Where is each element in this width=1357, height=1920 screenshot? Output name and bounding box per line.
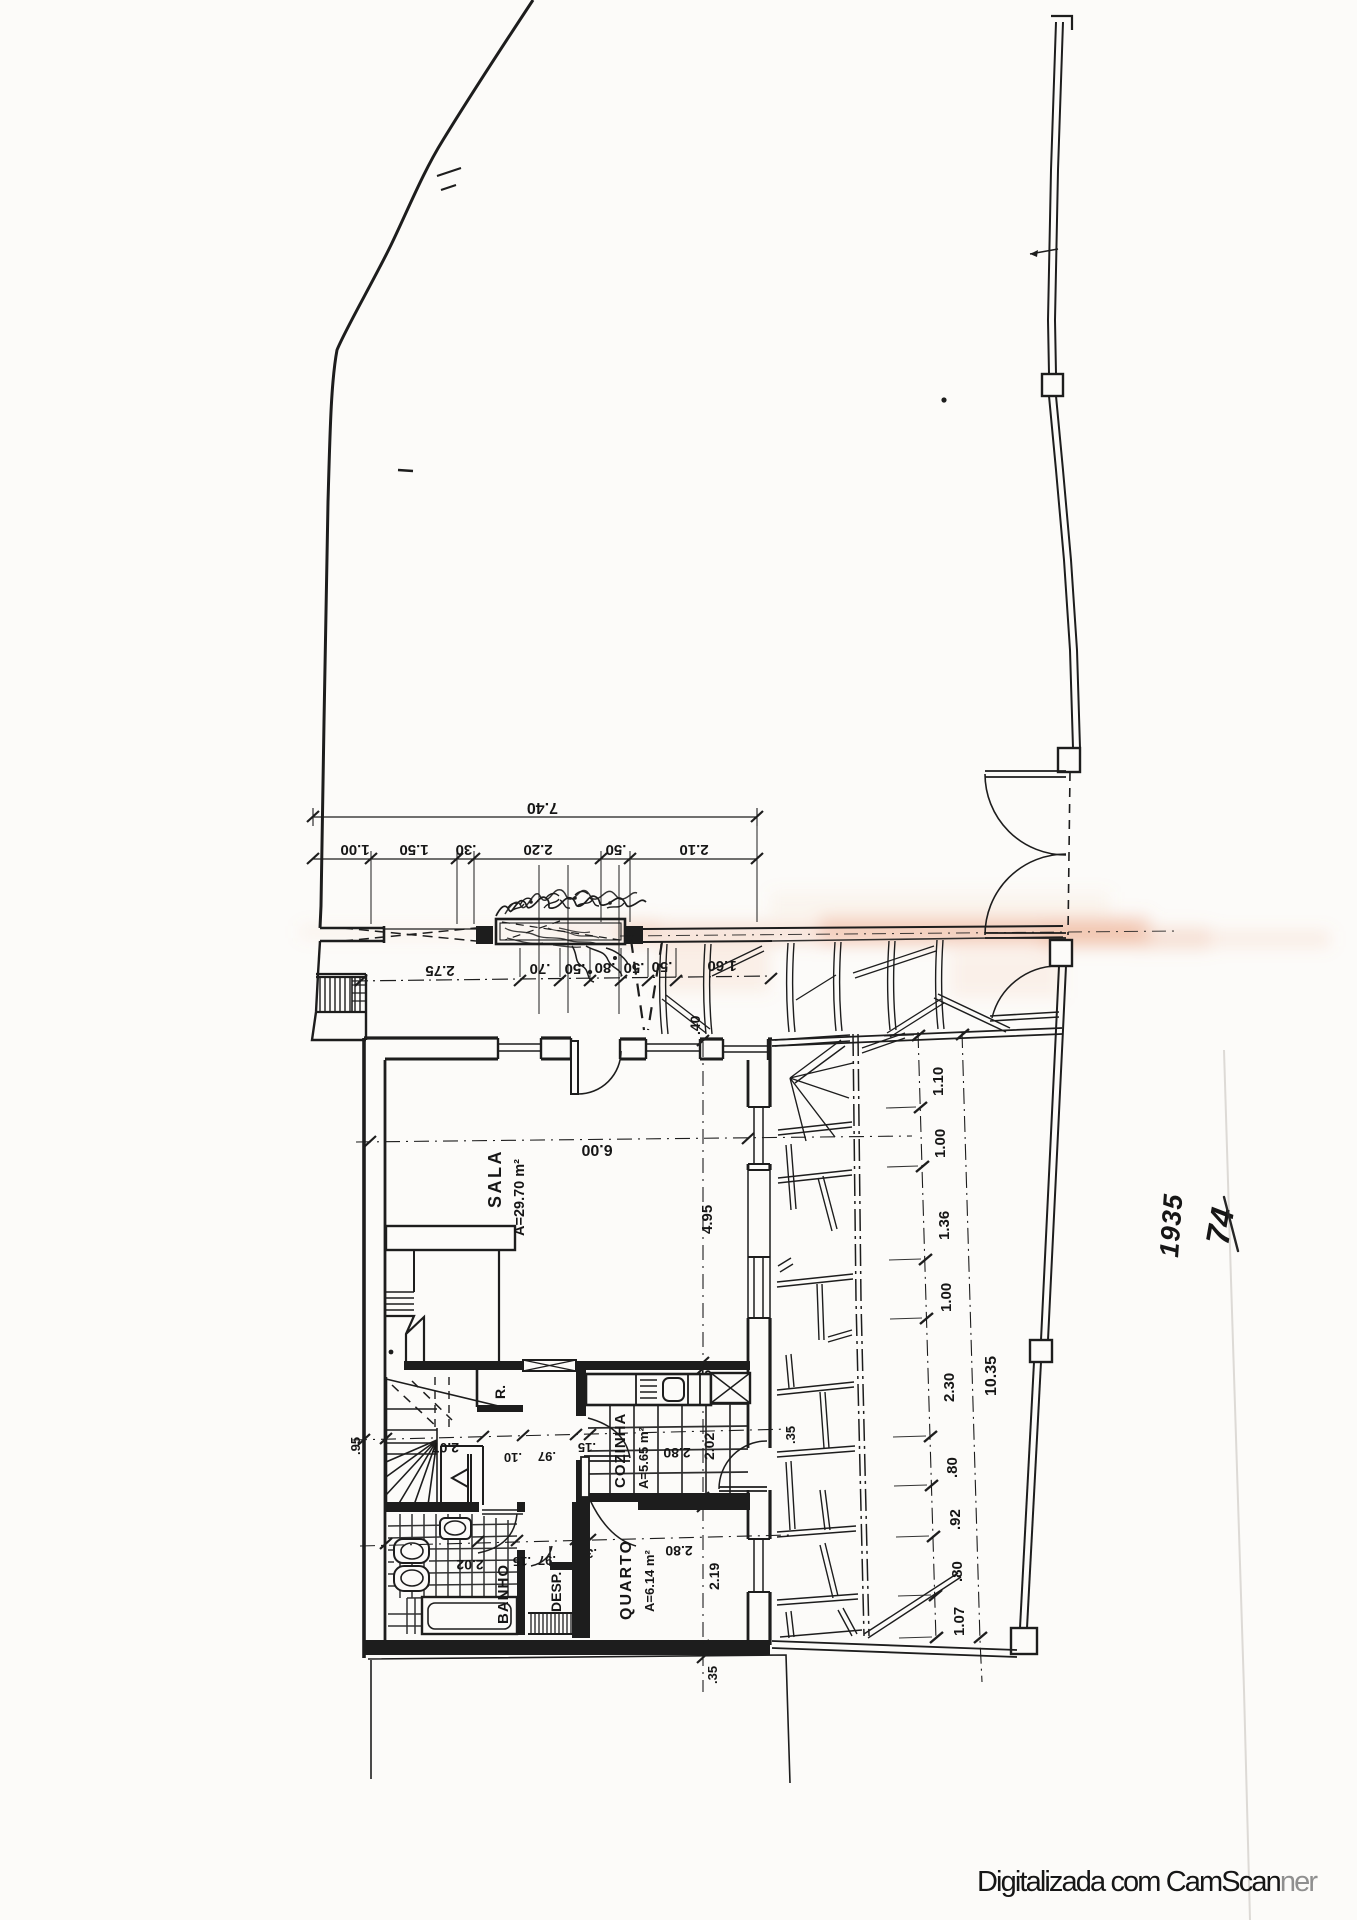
svg-text:.10: .10	[504, 1450, 522, 1465]
svg-text:1.10: 1.10	[930, 1067, 947, 1096]
svg-text:2.19: 2.19	[706, 1563, 722, 1590]
svg-text:.80: .80	[944, 1457, 961, 1478]
svg-text:.80: .80	[949, 1561, 966, 1582]
svg-text:1.50: 1.50	[399, 841, 428, 858]
svg-text:.15: .15	[513, 1554, 531, 1569]
svg-text:1935: 1935	[1154, 1192, 1188, 1258]
svg-text:.92: .92	[947, 1509, 964, 1530]
svg-text:1.00: 1.00	[938, 1283, 955, 1312]
svg-text:COZINHA: COZINHA	[612, 1413, 629, 1488]
svg-text:10.35: 10.35	[983, 1356, 1000, 1396]
svg-text:.70: .70	[530, 960, 551, 977]
svg-text:A=6.14 m²: A=6.14 m²	[642, 1550, 657, 1612]
svg-text:2.02: 2.02	[456, 1557, 483, 1573]
svg-text:.35: .35	[783, 1426, 798, 1444]
svg-text:.30: .30	[456, 841, 477, 858]
svg-text:1.36: 1.36	[936, 1211, 953, 1240]
svg-text:Digitalizada com CamScanner: Digitalizada com CamScanner	[977, 1866, 1318, 1898]
svg-text:.80: .80	[595, 959, 616, 976]
svg-text:DESP.: DESP.	[548, 1572, 564, 1612]
svg-text:R.: R.	[492, 1385, 508, 1399]
svg-text:.35: .35	[705, 1666, 720, 1684]
svg-text:A=29.70 m²: A=29.70 m²	[512, 1159, 528, 1236]
svg-text:2.30: 2.30	[941, 1373, 958, 1402]
svg-text:2.10: 2.10	[679, 841, 708, 858]
svg-text:.95: .95	[348, 1437, 363, 1455]
svg-text:.50: .50	[565, 960, 586, 977]
svg-text:.97: .97	[538, 1449, 556, 1464]
svg-text:1.07: 1.07	[951, 1607, 968, 1636]
svg-text:1.00: 1.00	[340, 841, 369, 858]
svg-text:.15: .15	[578, 1440, 596, 1455]
svg-text:4.95: 4.95	[699, 1205, 716, 1234]
svg-text:2.20: 2.20	[523, 841, 552, 858]
svg-text:6.00: 6.00	[581, 1141, 612, 1158]
svg-text:7.40: 7.40	[527, 799, 558, 816]
svg-text:2.80: 2.80	[665, 1543, 692, 1559]
svg-text:.50: .50	[652, 958, 673, 975]
svg-text:1.00: 1.00	[932, 1129, 949, 1158]
svg-text:2.02: 2.02	[701, 1433, 717, 1460]
svg-text:.40: .40	[687, 1015, 703, 1035]
svg-text:QUARTO: QUARTO	[618, 1539, 635, 1620]
svg-text:SALA: SALA	[485, 1149, 505, 1208]
svg-text:2.80: 2.80	[663, 1445, 690, 1461]
svg-text:A=5.65 m²: A=5.65 m²	[636, 1427, 651, 1489]
svg-text:BANHO: BANHO	[495, 1564, 512, 1624]
svg-text:2.75: 2.75	[425, 962, 454, 979]
svg-text:.50: .50	[606, 841, 627, 858]
svg-text:2.07: 2.07	[432, 1440, 459, 1456]
